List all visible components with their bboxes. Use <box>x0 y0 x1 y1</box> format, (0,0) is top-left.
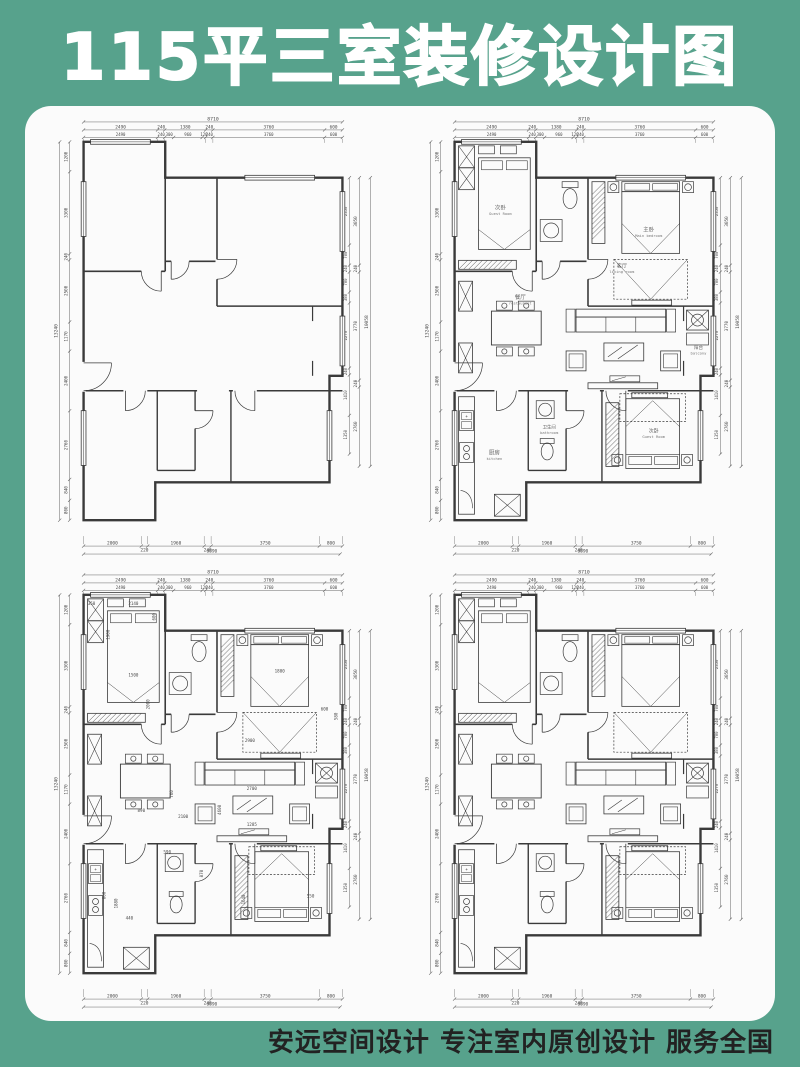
plan-furnished-dimensioned: 8710249024013802403760600249024030096012… <box>29 564 400 1018</box>
svg-text:3750: 3750 <box>630 994 641 1000</box>
svg-text:1410: 1410 <box>343 390 348 400</box>
svg-text:240: 240 <box>576 132 584 137</box>
svg-text:240: 240 <box>528 585 536 590</box>
svg-text:10058: 10058 <box>735 768 741 782</box>
svg-text:240: 240 <box>714 264 719 272</box>
svg-text:2900: 2900 <box>244 738 255 743</box>
svg-text:13240: 13240 <box>53 324 59 338</box>
svg-text:1380: 1380 <box>179 124 190 130</box>
svg-text:bathroom: bathroom <box>540 430 559 435</box>
svg-text:2500: 2500 <box>63 285 69 296</box>
svg-text:840: 840 <box>63 939 69 947</box>
svg-text:10058: 10058 <box>735 315 741 329</box>
svg-text:240: 240 <box>724 264 730 272</box>
svg-text:380: 380 <box>343 747 348 755</box>
svg-text:2490: 2490 <box>486 132 496 137</box>
svg-text:1170: 1170 <box>434 784 440 795</box>
svg-text:2400: 2400 <box>434 375 440 386</box>
svg-text:240: 240 <box>353 718 359 726</box>
svg-text:1960: 1960 <box>170 540 181 546</box>
svg-text:+: + <box>465 414 468 419</box>
svg-text:1380: 1380 <box>550 124 561 130</box>
studio-footer: 安远空间设计 专注室内原创设计 服务全国 <box>268 1022 774 1059</box>
svg-text:240: 240 <box>157 585 165 590</box>
svg-text:700: 700 <box>714 278 719 286</box>
svg-text:2500: 2500 <box>63 739 69 750</box>
svg-text:240: 240 <box>343 718 348 726</box>
svg-text:600: 600 <box>329 578 337 584</box>
svg-text:2760: 2760 <box>434 439 440 450</box>
svg-text:8710: 8710 <box>578 116 590 122</box>
svg-text:240: 240 <box>434 252 440 260</box>
svg-text:1200: 1200 <box>434 604 440 615</box>
svg-text:2000: 2000 <box>107 540 118 546</box>
svg-text:1380: 1380 <box>179 578 190 584</box>
svg-text:2000: 2000 <box>145 699 150 710</box>
svg-text:3760: 3760 <box>634 132 644 137</box>
plan-furnished-plain: 8710249024013802403760600249024030096012… <box>400 564 771 1018</box>
svg-text:240: 240 <box>343 264 348 272</box>
svg-text:800: 800 <box>63 959 69 967</box>
svg-text:2490: 2490 <box>486 124 497 130</box>
svg-text:8710: 8710 <box>578 570 590 576</box>
svg-text:600: 600 <box>700 578 708 584</box>
svg-text:3760: 3760 <box>634 585 644 590</box>
svg-text:3300: 3300 <box>63 660 69 671</box>
svg-text:2490: 2490 <box>115 585 125 590</box>
svg-text:240: 240 <box>205 585 213 590</box>
svg-text:2760: 2760 <box>63 893 69 904</box>
svg-text:220: 220 <box>511 1001 519 1007</box>
svg-text:800: 800 <box>63 506 69 514</box>
page-title: 115平三室装修设计图 <box>0 2 800 102</box>
svg-text:2490: 2490 <box>115 578 126 584</box>
svg-text:2760: 2760 <box>63 439 69 450</box>
svg-text:2140: 2140 <box>128 601 139 606</box>
svg-text:600: 600 <box>700 132 708 137</box>
svg-text:3760: 3760 <box>634 578 645 584</box>
svg-text:240: 240 <box>353 833 359 841</box>
svg-text:240: 240 <box>63 252 69 260</box>
svg-text:600: 600 <box>700 585 708 590</box>
svg-text:3770: 3770 <box>724 320 730 331</box>
svg-text:1800: 1800 <box>274 669 285 674</box>
svg-text:240: 240 <box>63 706 69 714</box>
svg-text:840: 840 <box>63 485 69 493</box>
plan-furnished-labeled: 8710249024013802403760600249024030096012… <box>400 110 771 564</box>
svg-text:2500: 2500 <box>434 739 440 750</box>
svg-text:240: 240 <box>353 264 359 272</box>
svg-text:2490: 2490 <box>486 578 497 584</box>
svg-text:8890: 8890 <box>206 548 217 554</box>
svg-text:1880: 1880 <box>113 898 118 909</box>
svg-text:1640: 1640 <box>240 894 245 905</box>
svg-text:1350: 1350 <box>714 883 719 893</box>
svg-text:240: 240 <box>576 585 584 590</box>
svg-text:800: 800 <box>697 994 705 1000</box>
svg-text:3050: 3050 <box>724 216 730 227</box>
svg-text:2760: 2760 <box>434 893 440 904</box>
poster: { "title": "115平三室装修设计图", "footer": "安远空… <box>0 0 800 1067</box>
svg-text:2400: 2400 <box>434 829 440 840</box>
svg-text:2700: 2700 <box>246 786 257 791</box>
svg-text:240: 240 <box>157 578 165 584</box>
svg-text:1410: 1410 <box>714 843 719 853</box>
svg-text:1410: 1410 <box>343 843 348 853</box>
svg-text:restaurant: restaurant <box>508 300 531 305</box>
svg-text:350: 350 <box>87 601 95 606</box>
plan-original-structure: 8710249024013802403760600249024030096012… <box>29 110 400 564</box>
svg-text:800: 800 <box>101 892 106 900</box>
svg-text:1170: 1170 <box>434 331 440 342</box>
svg-text:300: 300 <box>536 585 544 590</box>
svg-text:600: 600 <box>320 707 328 712</box>
floor-plan-svg-plain: 8710249024013802403760600249024030096012… <box>402 565 770 1015</box>
svg-text:240: 240 <box>353 379 359 387</box>
svg-text:kitchen: kitchen <box>486 456 502 461</box>
svg-text:700: 700 <box>714 704 719 712</box>
floor-plan-svg-original: 8710249024013802403760600249024030096012… <box>31 112 399 562</box>
svg-text:760: 760 <box>169 790 174 798</box>
svg-text:800: 800 <box>326 540 334 546</box>
svg-text:3770: 3770 <box>724 774 730 785</box>
svg-text:1170: 1170 <box>63 331 69 342</box>
svg-text:1960: 1960 <box>170 994 181 1000</box>
svg-text:2000: 2000 <box>478 994 489 1000</box>
floor-plans-panel: 8710249024013802403760600249024030096012… <box>25 106 775 1021</box>
svg-text:600: 600 <box>329 585 337 590</box>
svg-text:1380: 1380 <box>550 578 561 584</box>
svg-text:2400: 2400 <box>63 829 69 840</box>
svg-text:4600: 4600 <box>216 805 221 816</box>
svg-text:800: 800 <box>697 540 705 546</box>
svg-text:240: 240 <box>434 706 440 714</box>
svg-text:2490: 2490 <box>115 124 126 130</box>
svg-text:800: 800 <box>434 506 440 514</box>
svg-text:2000: 2000 <box>107 994 118 1000</box>
svg-text:1170: 1170 <box>63 784 69 795</box>
svg-text:240: 240 <box>157 124 165 130</box>
svg-text:240: 240 <box>205 124 213 130</box>
svg-text:800: 800 <box>326 994 334 1000</box>
svg-text:10058: 10058 <box>364 315 370 329</box>
svg-text:240: 240 <box>205 132 213 137</box>
svg-text:2490: 2490 <box>486 585 496 590</box>
svg-text:3770: 3770 <box>353 320 359 331</box>
svg-text:240: 240 <box>528 124 536 130</box>
svg-text:240: 240 <box>714 821 719 829</box>
svg-text:8890: 8890 <box>206 1002 217 1008</box>
svg-text:3770: 3770 <box>353 774 359 785</box>
svg-text:1410: 1410 <box>714 390 719 400</box>
svg-text:3760: 3760 <box>634 124 645 130</box>
svg-text:1200: 1200 <box>63 604 69 615</box>
svg-text:3300: 3300 <box>434 660 440 671</box>
svg-text:590: 590 <box>163 850 171 855</box>
svg-text:3050: 3050 <box>353 669 359 680</box>
svg-text:380: 380 <box>343 293 348 301</box>
svg-text:2500: 2500 <box>434 285 440 296</box>
svg-text:3760: 3760 <box>263 585 273 590</box>
floor-plan-svg-dimensioned: 8710249024013802403760600249024030096012… <box>31 565 399 1015</box>
svg-text:240: 240 <box>724 833 730 841</box>
svg-text:8710: 8710 <box>207 570 219 576</box>
svg-text:840: 840 <box>434 939 440 947</box>
svg-text:Main bedroom: Main bedroom <box>635 233 663 238</box>
svg-text:960: 960 <box>184 132 192 137</box>
svg-text:2490: 2490 <box>115 132 125 137</box>
svg-text:840: 840 <box>434 485 440 493</box>
svg-text:550: 550 <box>306 894 314 899</box>
svg-text:700: 700 <box>343 278 348 286</box>
svg-text:balcony: balcony <box>690 350 707 355</box>
svg-text:1200: 1200 <box>63 151 69 162</box>
svg-text:700: 700 <box>343 731 348 739</box>
svg-text:700: 700 <box>343 704 348 712</box>
svg-text:220: 220 <box>511 547 519 553</box>
svg-text:3760: 3760 <box>263 578 274 584</box>
svg-text:870: 870 <box>199 870 204 878</box>
svg-text:2760: 2760 <box>724 874 730 885</box>
svg-text:2400: 2400 <box>63 375 69 386</box>
svg-text:living room: living room <box>609 269 635 274</box>
svg-text:Guest Room: Guest Room <box>489 211 512 216</box>
svg-text:240: 240 <box>343 367 348 375</box>
svg-text:240: 240 <box>205 578 213 584</box>
svg-text:3760: 3760 <box>263 132 273 137</box>
svg-text:700: 700 <box>714 731 719 739</box>
svg-text:3760: 3760 <box>263 124 274 130</box>
svg-text:2760: 2760 <box>353 421 359 432</box>
svg-text:2000: 2000 <box>478 540 489 546</box>
svg-text:960: 960 <box>555 132 563 137</box>
svg-text:2760: 2760 <box>724 421 730 432</box>
svg-text:960: 960 <box>555 585 563 590</box>
svg-text:13240: 13240 <box>424 324 430 338</box>
svg-text:1500: 1500 <box>128 673 139 678</box>
svg-text:10058: 10058 <box>364 768 370 782</box>
svg-text:240: 240 <box>528 132 536 137</box>
svg-text:1350: 1350 <box>343 429 348 439</box>
svg-text:3300: 3300 <box>434 207 440 218</box>
svg-text:380: 380 <box>714 293 719 301</box>
svg-text:890: 890 <box>137 808 145 813</box>
svg-text:240: 240 <box>724 718 730 726</box>
svg-text:600: 600 <box>151 613 156 621</box>
svg-text:8710: 8710 <box>207 116 219 122</box>
svg-text:600: 600 <box>329 132 337 137</box>
svg-text:800: 800 <box>434 959 440 967</box>
svg-text:3750: 3750 <box>259 994 270 1000</box>
svg-text:240: 240 <box>576 578 584 584</box>
svg-text:600: 600 <box>700 124 708 130</box>
svg-text:1350: 1350 <box>343 883 348 893</box>
svg-text:+: + <box>465 867 468 872</box>
svg-text:+: + <box>94 867 97 872</box>
svg-text:700: 700 <box>343 251 348 259</box>
floor-plan-svg-labeled: 8710249024013802403760600249024030096012… <box>402 112 770 562</box>
svg-text:240: 240 <box>157 132 165 137</box>
svg-text:13240: 13240 <box>53 777 59 791</box>
svg-text:600: 600 <box>329 124 337 130</box>
svg-text:3300: 3300 <box>63 207 69 218</box>
svg-text:300: 300 <box>165 585 173 590</box>
svg-text:Guest Room: Guest Room <box>642 434 665 439</box>
svg-text:240: 240 <box>576 124 584 130</box>
svg-text:2760: 2760 <box>353 874 359 885</box>
svg-text:240: 240 <box>343 821 348 829</box>
svg-text:2100: 2100 <box>178 814 189 819</box>
svg-text:300: 300 <box>165 132 173 137</box>
svg-text:380: 380 <box>714 747 719 755</box>
svg-text:240: 240 <box>714 718 719 726</box>
svg-text:700: 700 <box>714 251 719 259</box>
svg-text:13240: 13240 <box>424 777 430 791</box>
svg-text:3050: 3050 <box>353 216 359 227</box>
svg-text:300: 300 <box>536 132 544 137</box>
svg-text:3750: 3750 <box>630 540 641 546</box>
svg-text:240: 240 <box>714 367 719 375</box>
svg-text:1960: 1960 <box>541 994 552 1000</box>
svg-text:580: 580 <box>333 712 338 720</box>
svg-text:440: 440 <box>125 916 133 921</box>
svg-text:1900: 1900 <box>105 629 110 640</box>
svg-text:220: 220 <box>140 547 148 553</box>
svg-text:8890: 8890 <box>577 1002 588 1008</box>
svg-text:1200: 1200 <box>434 151 440 162</box>
svg-text:3750: 3750 <box>259 540 270 546</box>
svg-text:240: 240 <box>528 578 536 584</box>
svg-text:1285: 1285 <box>246 822 257 827</box>
svg-text:220: 220 <box>140 1001 148 1007</box>
svg-text:3050: 3050 <box>724 669 730 680</box>
svg-text:1960: 1960 <box>541 540 552 546</box>
svg-text:960: 960 <box>184 585 192 590</box>
svg-text:8890: 8890 <box>577 548 588 554</box>
svg-text:1350: 1350 <box>714 429 719 439</box>
svg-text:240: 240 <box>724 379 730 387</box>
